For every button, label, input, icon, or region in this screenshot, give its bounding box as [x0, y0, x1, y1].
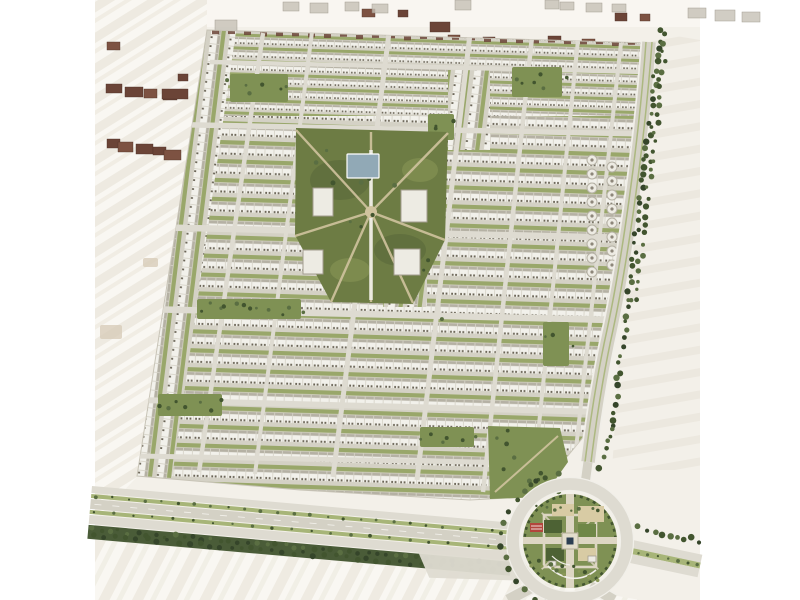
masterplan-aerial-view — [0, 0, 800, 600]
roundabout-park — [507, 478, 634, 600]
masterplan-screenshot — [0, 0, 800, 600]
